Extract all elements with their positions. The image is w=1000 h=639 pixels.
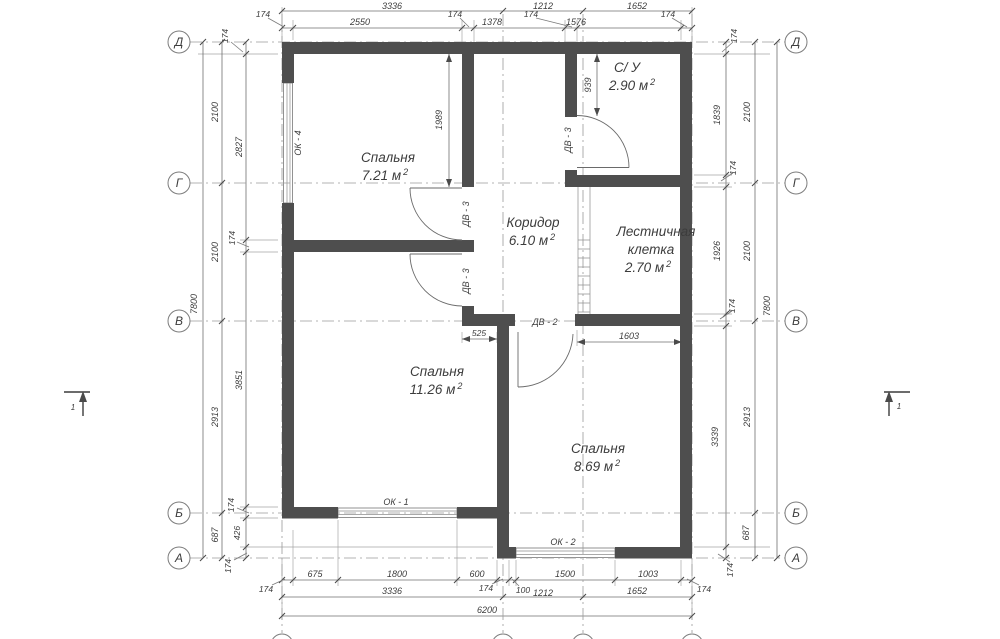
top-wall [282,42,692,54]
dim-label: 2100 [742,102,752,123]
b-axis-wall-left [282,507,338,519]
dim-label: 1800 [387,569,407,579]
b-axis-wall-right [457,507,509,519]
room-name-corridor: Коридор [507,215,560,230]
dim-label: 174 [220,29,230,43]
dim-label: 687 [210,527,220,543]
dim-label: 1576 [566,17,586,27]
dim-label: 174 [729,29,739,43]
window-label-ok4: ОК - 4 [293,130,303,155]
section-mark-left: 1 [64,391,90,416]
dim-label: 426 [232,526,242,540]
dim-label: 7800 [762,296,772,316]
dim-label: 174 [448,9,462,19]
axis-letter-d-right: Д [790,35,801,49]
window-ok2 [516,548,615,558]
dim-label: 2550 [349,17,370,27]
dim-label: 174 [226,498,236,512]
bathroom-wall-upper [565,54,577,117]
dimension-leaders [231,18,733,586]
door-dv3-bedroom2 [410,254,462,306]
dim-label: 3336 [382,1,402,11]
door-label-dv2: ДВ - 2 [531,317,557,327]
room-area-bedroom1: 7.21 м2 [362,167,408,183]
door-label-dv3-bathroom: ДВ - 3 [563,127,573,153]
section-number: 1 [897,402,901,411]
dim-label: 525 [472,328,486,338]
dim-label: 1603 [619,331,639,341]
dim-label: 1500 [555,569,575,579]
stairs-ladder [578,187,590,314]
step-wall [497,326,509,559]
dim-label: 1839 [712,105,722,125]
dim-label: 174 [256,9,270,19]
room-area-bathroom: 2.90 м2 [608,77,655,93]
axis-letter-b-left: Б [175,506,183,520]
interior-dim-arrows [446,54,682,345]
opening-labels: ОК - 4 ОК - 1 ОК - 2 ДВ - 2 ДВ - 3 ДВ - … [293,127,576,547]
bathroom-south-wall [565,175,692,187]
dim-label: 2100 [210,242,220,263]
dim-label: 174 [725,563,735,577]
dim-label: 1652 [627,586,647,596]
dim-label: 2100 [210,102,220,123]
window-label-ok2: ОК - 2 [550,537,575,547]
section-mark-right: 1 [884,391,910,416]
right-wall [680,42,692,559]
dim-label: 174 [697,584,711,594]
dim-label: 174 [728,161,738,175]
door-label-dv3-bedroom2: ДВ - 3 [461,268,471,294]
axis-letter-b-right: Б [792,506,800,520]
dim-label: 1378 [482,17,502,27]
room-area-corridor: 6.10 м2 [509,232,555,248]
dim-label: 2827 [234,136,244,158]
dim-label: 1652 [627,1,647,11]
dim-label: 174 [227,231,237,245]
dim-label: 174 [727,299,737,313]
a-axis-wall-left [497,547,516,559]
dim-label: 100 [516,585,530,595]
dim-label: 2100 [742,241,752,262]
dim-label: 7800 [189,294,199,314]
window-ok4 [284,83,293,203]
dim-label: 174 [524,9,538,19]
door-dv3-bathroom [577,116,629,168]
room-name-bedroom1: Спальня [361,150,415,165]
walls [282,42,692,559]
floor-plan-drawing: 1 1 Д Г В Б А Д Г В Б А 1 2 3 4 3336 121… [0,0,1000,639]
door-label-dv3-bedroom1: ДВ - 3 [461,201,471,227]
dim-label: 1003 [638,569,658,579]
room-name-stairwell-1: Лестничная [616,224,696,239]
room-name-bedroom2: Спальня [410,364,464,379]
dim-label: 3339 [710,427,720,447]
room-name-bedroom3: Спальня [571,441,625,456]
section-number: 1 [71,403,75,412]
door-dv3-bedroom1 [410,188,462,240]
window-label-ok1: ОК - 1 [383,497,408,507]
dim-label: 174 [479,583,493,593]
a-axis-wall-right [615,547,692,559]
axis-letter-v-left: В [175,314,183,328]
dim-label: 174 [223,559,233,573]
room-area-stairwell: 2.70 м2 [624,259,671,275]
dim-label: 2913 [742,407,752,428]
dim-label: 1212 [533,588,553,598]
axis-letter-a-right: А [791,551,800,565]
dim-label: 1926 [712,241,722,261]
dim-label: 6200 [477,605,497,615]
corridor-wall-upper [462,54,474,187]
dim-label: 939 [583,77,593,92]
bedroom-divider-wall [282,240,474,252]
dim-label: 1989 [434,110,444,130]
room-name-bathroom: С/ У [614,60,641,75]
room-area-bedroom2: 11.26 м2 [410,381,463,397]
floor-plan-sheet: 1 1 Д Г В Б А Д Г В Б А 1 2 3 4 3336 121… [0,0,1000,639]
room-area-bedroom3: 8.69 м2 [574,458,620,474]
axis-letter-d-left: Д [173,35,184,49]
room-name-stairwell-2: клетка [628,242,675,257]
dim-label: 675 [307,569,323,579]
dim-label: 687 [741,525,751,541]
door-dv2-bedroom3 [518,332,573,387]
dim-label: 3336 [382,586,402,596]
mid-wall-left-seg [462,314,515,326]
axis-letter-v-right: В [792,314,800,328]
axis-letter-a-left: А [174,551,183,565]
dim-label: 600 [469,569,484,579]
left-wall-upper [282,42,294,83]
dim-label: 174 [661,9,675,19]
dim-label: 174 [259,584,273,594]
dim-label: 2913 [210,407,220,428]
dim-label: 3851 [234,370,244,390]
mid-wall-right-seg [575,314,692,326]
